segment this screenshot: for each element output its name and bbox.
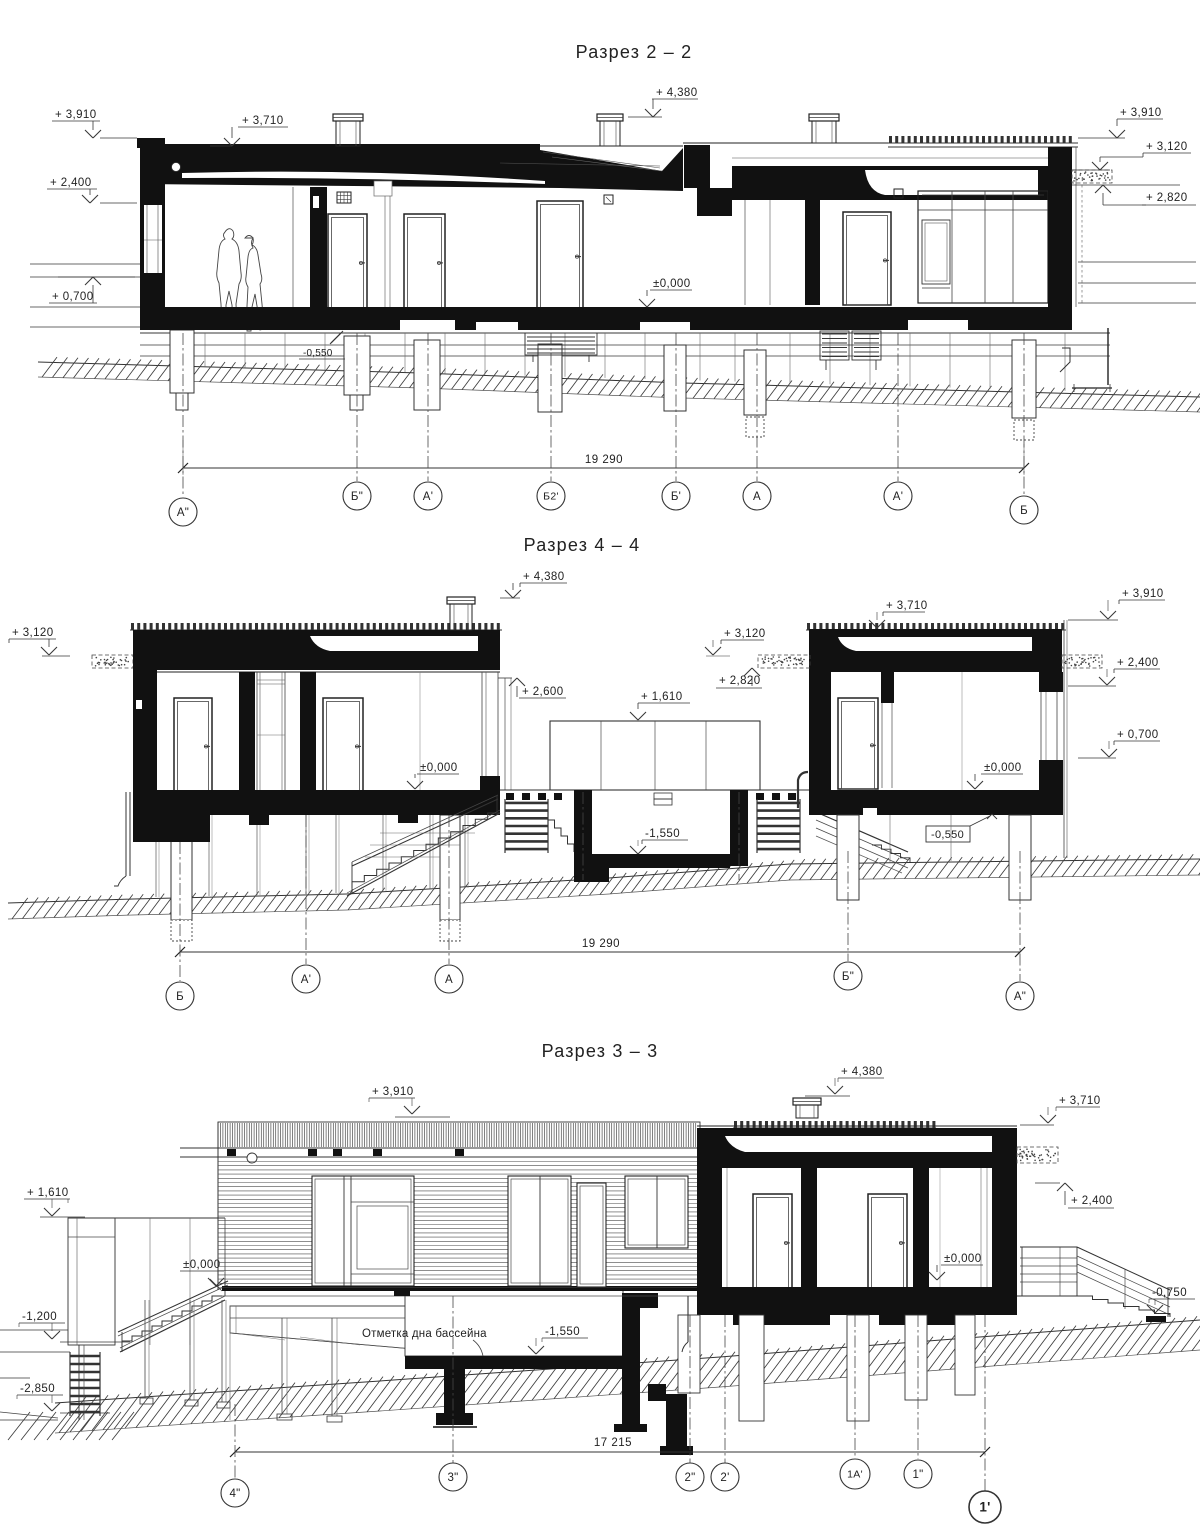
svg-text:+ 2,400: + 2,400 (1071, 1195, 1113, 1207)
svg-text:-0,550: -0,550 (303, 348, 333, 359)
svg-text:+ 3,120: + 3,120 (724, 628, 766, 640)
svg-text:-1,550: -1,550 (645, 828, 680, 840)
svg-text:-1,550: -1,550 (545, 1326, 580, 1338)
svg-text:Б': Б' (671, 491, 681, 503)
svg-text:+ 1,610: + 1,610 (641, 691, 683, 703)
svg-text:+ 0,700: + 0,700 (52, 291, 94, 303)
svg-text:+ 3,910: + 3,910 (1122, 588, 1164, 600)
svg-text:+ 4,380: + 4,380 (656, 87, 698, 99)
svg-text:1": 1" (912, 1469, 923, 1481)
svg-text:Отметка дна бассейна: Отметка дна бассейна (362, 1328, 487, 1340)
svg-text:Б: Б (176, 991, 184, 1003)
svg-text:Б": Б" (842, 971, 854, 983)
svg-text:+ 2,400: + 2,400 (1117, 657, 1159, 669)
svg-text:19 290: 19 290 (585, 454, 623, 466)
svg-text:+ 3,710: + 3,710 (886, 600, 928, 612)
svg-text:+ 3,710: + 3,710 (1059, 1095, 1101, 1107)
svg-text:+ 4,380: + 4,380 (841, 1066, 883, 1078)
svg-text:±0,000: ±0,000 (653, 278, 691, 290)
svg-text:Разрез 3 – 3: Разрез 3 – 3 (542, 1041, 659, 1061)
svg-text:1': 1' (979, 1500, 990, 1515)
svg-text:+ 3,120: + 3,120 (1146, 141, 1188, 153)
svg-text:А": А" (1014, 991, 1026, 1003)
svg-text:Б: Б (1020, 505, 1028, 517)
svg-text:+ 2,820: + 2,820 (1146, 192, 1188, 204)
svg-text:-2,850: -2,850 (20, 1383, 55, 1395)
svg-text:3": 3" (447, 1472, 458, 1484)
svg-text:А": А" (177, 507, 189, 519)
svg-text:±0,000: ±0,000 (944, 1253, 982, 1265)
svg-text:+ 3,120: + 3,120 (12, 627, 54, 639)
svg-text:А': А' (893, 491, 903, 503)
svg-text:А': А' (301, 974, 311, 986)
svg-text:+ 0,700: + 0,700 (1117, 729, 1159, 741)
svg-text:+ 3,710: + 3,710 (242, 115, 284, 127)
svg-text:1А': 1А' (847, 1469, 863, 1481)
svg-text:2": 2" (684, 1472, 695, 1484)
svg-text:+ 3,910: + 3,910 (1120, 107, 1162, 119)
svg-text:17 215: 17 215 (594, 1437, 632, 1449)
svg-text:+ 2,400: + 2,400 (50, 177, 92, 189)
svg-text:А: А (445, 974, 453, 986)
svg-text:±0,000: ±0,000 (984, 762, 1022, 774)
svg-text:+ 3,910: + 3,910 (55, 109, 97, 121)
svg-text:Разрез 2 – 2: Разрез 2 – 2 (576, 42, 693, 62)
svg-text:Б2': Б2' (543, 491, 559, 503)
svg-text:-0,750: -0,750 (1152, 1287, 1187, 1299)
svg-text:+ 2,820: + 2,820 (719, 675, 761, 687)
svg-text:-1,200: -1,200 (22, 1311, 57, 1323)
svg-text:+ 1,610: + 1,610 (27, 1187, 69, 1199)
svg-text:+ 4,380: + 4,380 (523, 571, 565, 583)
svg-text:А: А (753, 491, 761, 503)
svg-text:2': 2' (720, 1472, 729, 1484)
svg-text:±0,000: ±0,000 (420, 762, 458, 774)
svg-text:+ 3,910: + 3,910 (372, 1086, 414, 1098)
svg-text:-0,550: -0,550 (931, 829, 964, 841)
svg-text:4": 4" (229, 1488, 240, 1500)
svg-text:Б": Б" (351, 491, 363, 503)
svg-text:+ 2,600: + 2,600 (522, 686, 564, 698)
svg-text:Разрез 4 – 4: Разрез 4 – 4 (524, 535, 641, 555)
svg-text:19 290: 19 290 (582, 938, 620, 950)
svg-text:±0,000: ±0,000 (183, 1259, 221, 1271)
svg-text:А': А' (423, 491, 433, 503)
